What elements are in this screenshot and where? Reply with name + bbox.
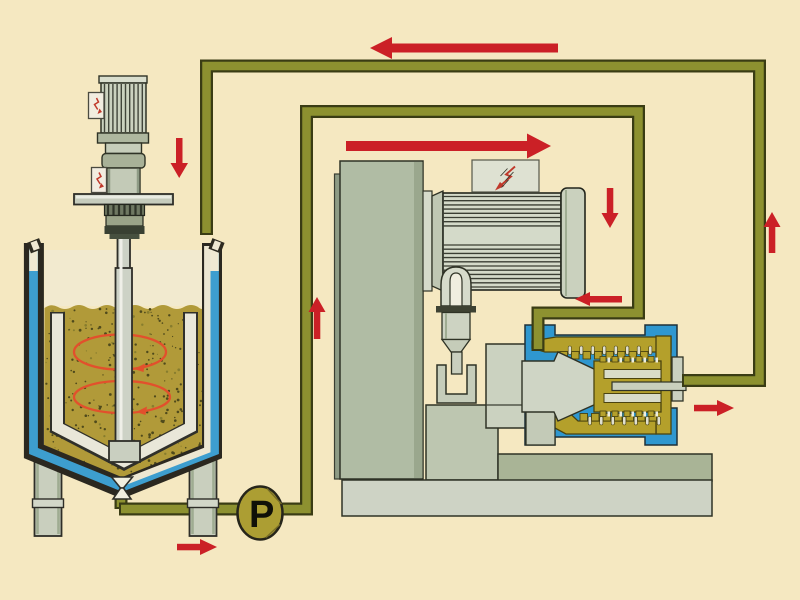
svg-text:P: P bbox=[249, 494, 274, 536]
